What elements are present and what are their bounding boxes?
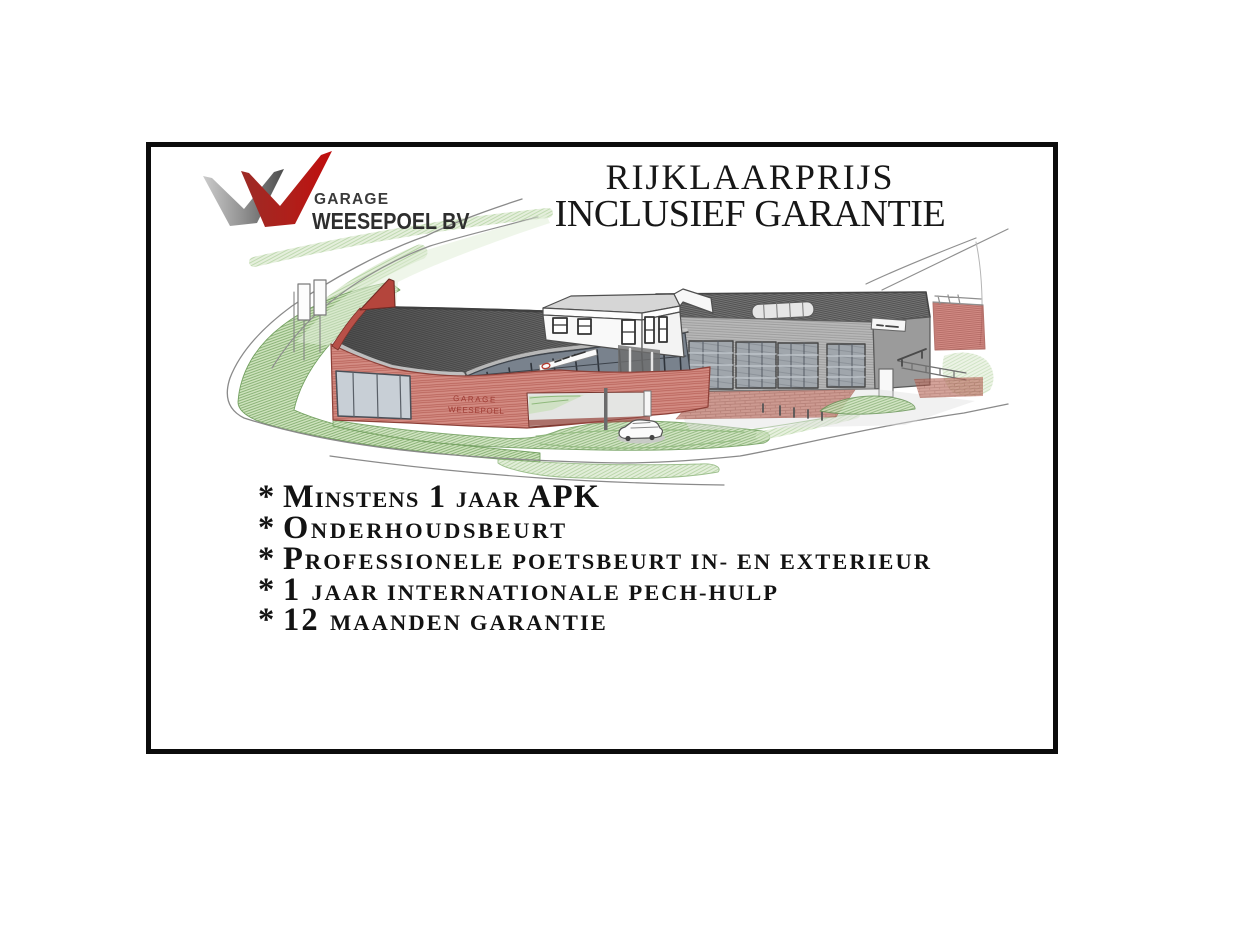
svg-text:GARAGE: GARAGE [453,394,497,405]
